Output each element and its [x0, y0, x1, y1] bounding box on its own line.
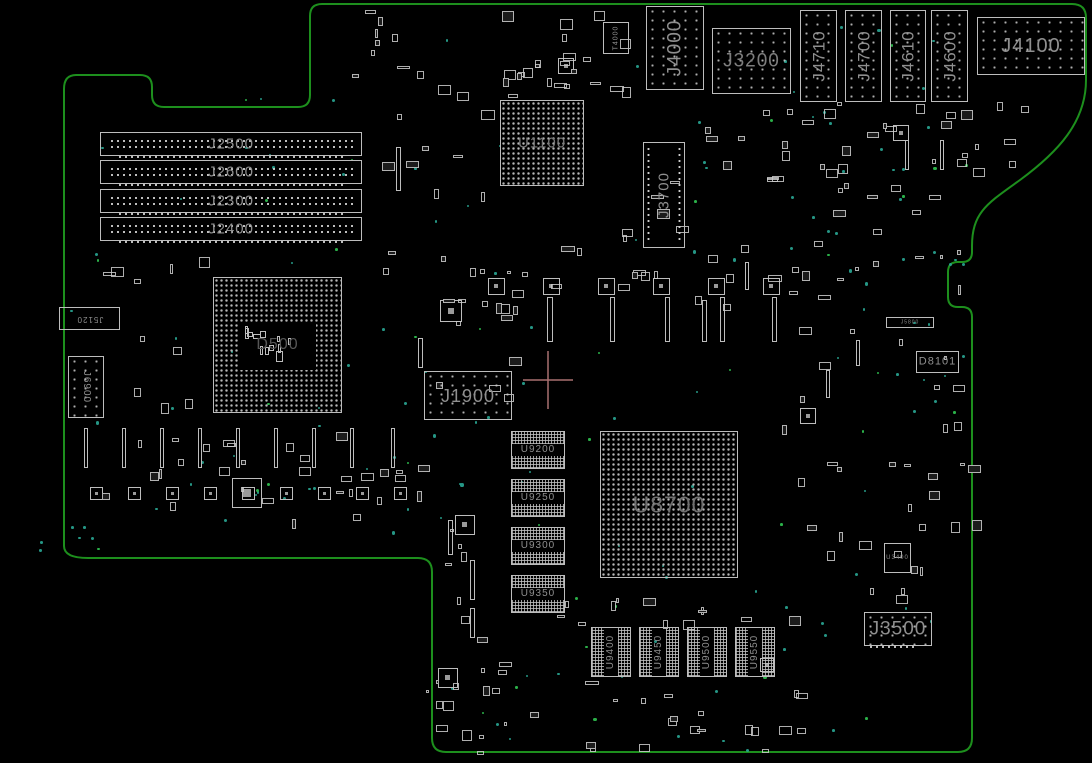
- component-J2400[interactable]: J2400: [100, 217, 362, 241]
- via-dot: [291, 262, 293, 264]
- refdes-label-U9500: U9500: [702, 635, 712, 669]
- smd-part: [443, 299, 455, 303]
- smd-part: [336, 432, 347, 441]
- smd-part: [561, 246, 574, 252]
- via-dot: [585, 646, 587, 648]
- smd-part: [382, 162, 395, 172]
- smd-part: [698, 610, 707, 613]
- pin-column: [646, 146, 651, 244]
- via-dot: [613, 417, 616, 420]
- via-dot: [635, 239, 637, 241]
- component-U9550[interactable]: U9550: [735, 627, 775, 677]
- component-U9350[interactable]: U9350: [511, 575, 565, 613]
- smd-part: [916, 104, 925, 114]
- smd-part: [436, 680, 439, 684]
- via-dot: [446, 39, 449, 42]
- smd-pad: [659, 284, 663, 288]
- component-J3500[interactable]: J3500: [864, 612, 932, 646]
- component-J4710[interactable]: J4710: [800, 10, 837, 102]
- smd-part: [517, 73, 521, 80]
- smd-part: [161, 403, 169, 413]
- smd-pad: [95, 492, 98, 495]
- via-dot: [715, 690, 718, 693]
- via-dot: [705, 167, 708, 170]
- smd-part: [160, 428, 164, 468]
- via-dot: [905, 607, 907, 609]
- smd-part: [392, 34, 398, 42]
- component-J4100[interactable]: J4100: [977, 17, 1085, 75]
- component-D8101[interactable]: D8101: [916, 351, 959, 373]
- via-dot: [95, 253, 98, 256]
- via-dot: [190, 483, 193, 486]
- smd-part: [844, 183, 849, 189]
- smd-part: [241, 487, 244, 492]
- smd-pad: [171, 492, 174, 495]
- smd-part: [422, 146, 429, 151]
- smd-part: [867, 132, 879, 138]
- component-U9400[interactable]: U9400: [591, 627, 631, 677]
- via-dot: [865, 282, 868, 285]
- smd-part: [957, 159, 966, 167]
- component-U1100[interactable]: U1100: [500, 100, 584, 186]
- via-dot: [335, 248, 338, 251]
- smd-part: [262, 498, 274, 504]
- via-dot: [840, 26, 843, 29]
- smd-part: [470, 560, 475, 600]
- refdes-label-U9200: U9200: [521, 445, 555, 455]
- pin-grid: [762, 628, 774, 676]
- component-T4000[interactable]: T4000: [603, 22, 629, 54]
- smd-part: [698, 711, 704, 716]
- via-dot: [827, 230, 830, 233]
- smd-part: [365, 10, 376, 14]
- smd-pad: [899, 131, 903, 135]
- component-J2600[interactable]: J2600: [100, 160, 362, 184]
- smd-part: [799, 327, 812, 336]
- via-dot: [832, 729, 835, 732]
- component-J6900[interactable]: J6900: [68, 356, 104, 418]
- smd-part: [391, 428, 395, 468]
- smd-part: [440, 300, 462, 322]
- component-U8700[interactable]: U8700: [600, 431, 738, 578]
- smd-part: [499, 662, 512, 667]
- refdes-label-U9400: U9400: [606, 635, 616, 669]
- smd-part: [972, 520, 982, 531]
- via-dot: [224, 519, 227, 522]
- smd-part: [501, 315, 513, 321]
- smd-part: [356, 487, 369, 500]
- smd-part: [417, 491, 423, 501]
- smd-part: [929, 195, 941, 201]
- smd-part: [445, 563, 452, 566]
- smd-part: [954, 422, 962, 431]
- smd-part: [951, 522, 961, 532]
- smd-part: [1021, 106, 1029, 113]
- smd-part: [670, 716, 678, 722]
- smd-part: [557, 615, 564, 619]
- refdes-label-U8700: U8700: [633, 493, 706, 516]
- smd-part: [1009, 161, 1016, 168]
- smd-part: [610, 297, 615, 342]
- smd-part: [159, 469, 162, 479]
- via-dot: [913, 410, 916, 413]
- refdes-label-J1900: J1900: [441, 387, 495, 405]
- component-J3700[interactable]: J3700: [643, 142, 685, 248]
- via-dot: [892, 169, 894, 171]
- smd-part: [796, 693, 808, 699]
- smd-part: [802, 120, 814, 125]
- smd-part: [436, 725, 448, 732]
- component-U9250[interactable]: U9250: [511, 479, 565, 517]
- via-dot: [824, 634, 827, 637]
- via-dot: [934, 400, 937, 403]
- via-dot: [588, 438, 590, 440]
- smd-part: [375, 29, 379, 38]
- via-dot: [39, 549, 42, 552]
- smd-part: [481, 668, 485, 673]
- component-D500[interactable]: D500: [213, 277, 342, 413]
- smd-part: [394, 487, 407, 500]
- smd-part: [798, 478, 805, 486]
- smd-part: [578, 622, 585, 626]
- smd-part: [350, 428, 354, 468]
- smd-part: [745, 262, 749, 290]
- via-dot: [557, 673, 559, 675]
- smd-part: [453, 155, 463, 158]
- pin-grid: [736, 628, 748, 676]
- smd-part: [960, 463, 965, 466]
- smd-part: [383, 268, 389, 275]
- smd-part: [641, 698, 647, 703]
- smd-part: [613, 699, 618, 702]
- component-U3400[interactable]: U3400: [884, 543, 911, 573]
- via-dot: [522, 382, 525, 385]
- smd-part: [873, 261, 878, 266]
- via-dot: [812, 116, 814, 118]
- pin-row: [868, 645, 917, 649]
- smd-part: [741, 617, 752, 622]
- smd-part: [767, 178, 777, 183]
- smd-part: [312, 428, 316, 468]
- smd-part: [441, 256, 447, 262]
- refdes-label-J4710: J4710: [810, 30, 827, 81]
- smd-part: [418, 465, 430, 471]
- smd-part: [738, 136, 745, 141]
- smd-part: [388, 251, 396, 254]
- via-dot: [392, 531, 395, 534]
- smd-part: [639, 744, 650, 751]
- via-dot: [837, 357, 840, 360]
- smd-part: [889, 462, 896, 468]
- via-dot: [175, 337, 178, 340]
- refdes-label-J3200: J3200: [723, 52, 780, 71]
- smd-part: [513, 306, 518, 315]
- smd-part: [641, 272, 649, 281]
- smd-part: [929, 491, 940, 500]
- smd-part: [503, 78, 509, 87]
- pin-grid: [688, 628, 700, 676]
- via-dot: [414, 336, 417, 339]
- smd-part: [837, 278, 844, 282]
- via-dot: [97, 548, 100, 551]
- smd-part: [102, 493, 111, 500]
- smd-part: [912, 210, 921, 215]
- smd-part: [940, 255, 943, 259]
- smd-part: [504, 722, 508, 726]
- smd-part: [837, 467, 842, 472]
- smd-part: [353, 514, 361, 520]
- refdes-label-J4100: J4100: [1001, 36, 1061, 56]
- component-J4700[interactable]: J4700: [845, 10, 882, 102]
- smd-part: [502, 11, 514, 22]
- component-J5800[interactable]: J5800: [886, 317, 934, 328]
- smd-part: [1004, 139, 1016, 145]
- via-dot: [96, 421, 99, 424]
- smd-part: [962, 153, 968, 158]
- pin-grid: [714, 628, 726, 676]
- smd-part: [560, 61, 570, 66]
- smd-part: [859, 541, 872, 551]
- via-dot: [366, 468, 368, 470]
- via-dot: [245, 99, 247, 101]
- via-dot: [467, 205, 469, 207]
- smd-part: [565, 601, 569, 607]
- smd-part: [199, 257, 210, 268]
- smd-part: [397, 114, 402, 120]
- smd-part: [140, 336, 145, 342]
- smd-part: [507, 271, 510, 274]
- refdes-label-U9350: U9350: [521, 589, 555, 599]
- smd-part: [973, 168, 985, 177]
- via-dot: [896, 373, 899, 376]
- smd-part: [768, 275, 782, 282]
- smd-part: [708, 255, 718, 263]
- smd-pad: [399, 492, 402, 495]
- pin-grid: [512, 432, 564, 444]
- via-dot: [171, 407, 174, 410]
- component-J3200[interactable]: J3200: [712, 28, 791, 94]
- via-dot: [318, 425, 320, 427]
- smd-part: [352, 74, 359, 78]
- smd-part: [779, 726, 792, 735]
- smd-pad: [209, 492, 212, 495]
- smd-part: [723, 304, 731, 311]
- via-dot: [923, 379, 925, 381]
- smd-part: [940, 140, 944, 170]
- via-dot: [770, 119, 773, 122]
- refdes-label-U9300: U9300: [521, 541, 555, 551]
- boardview-canvas[interactable]: J2500J2600J2300J2400U1100T4000J4000J3200…: [0, 0, 1092, 763]
- pin-grid: [592, 628, 604, 676]
- smd-part: [479, 735, 484, 739]
- smd-part: [377, 497, 382, 504]
- component-J4610[interactable]: J4610: [890, 10, 926, 102]
- smd-part: [705, 127, 711, 135]
- refdes-label-J6900: J6900: [81, 371, 91, 403]
- refdes-label-U9550: U9550: [750, 635, 760, 669]
- via-dot: [694, 200, 697, 203]
- component-J1900[interactable]: J1900: [424, 371, 512, 420]
- via-dot: [509, 738, 511, 740]
- smd-part: [807, 525, 818, 530]
- smd-part: [396, 147, 401, 191]
- smd-part: [741, 245, 749, 253]
- smd-part: [827, 551, 835, 561]
- smd-part: [762, 749, 769, 753]
- smd-part: [477, 637, 488, 643]
- smd-part: [530, 712, 539, 718]
- component-J5120[interactable]: J5120: [59, 307, 120, 330]
- smd-part: [883, 123, 887, 129]
- via-dot: [880, 148, 883, 151]
- pin-grid: [512, 552, 564, 564]
- smd-part: [928, 473, 938, 481]
- smd-part: [594, 11, 605, 21]
- smd-part: [496, 303, 502, 314]
- via-dot: [347, 364, 350, 367]
- smd-part: [975, 144, 979, 150]
- smd-pad: [133, 492, 136, 495]
- smd-part: [456, 321, 461, 326]
- smd-part: [957, 250, 961, 255]
- smd-part: [299, 467, 311, 476]
- smd-part: [457, 597, 461, 605]
- component-U9500[interactable]: U9500: [687, 627, 727, 677]
- smd-part: [632, 272, 638, 279]
- via-dot: [97, 259, 99, 261]
- smd-part: [616, 598, 619, 603]
- refdes-label-D500: D500: [256, 337, 298, 353]
- refdes-label-J5120: J5120: [76, 315, 103, 323]
- smd-part: [664, 694, 672, 698]
- smd-part: [173, 347, 182, 355]
- component-U9450[interactable]: U9450: [639, 627, 679, 677]
- smd-part: [782, 151, 791, 162]
- via-dot: [902, 258, 904, 260]
- smd-part: [236, 428, 240, 468]
- smd-part: [919, 524, 926, 530]
- via-dot: [233, 455, 236, 458]
- via-dot: [962, 263, 965, 266]
- smd-part: [453, 683, 459, 690]
- smd-part: [789, 616, 801, 627]
- smd-part: [178, 459, 184, 466]
- smd-part: [560, 19, 573, 30]
- refdes-label-U1100: U1100: [518, 136, 566, 151]
- smd-part: [873, 229, 882, 236]
- refdes-label-J4600: J4600: [941, 30, 958, 81]
- component-J2500[interactable]: J2500: [100, 132, 362, 156]
- smd-part: [870, 588, 873, 594]
- smd-part: [839, 532, 842, 542]
- smd-part: [697, 729, 706, 732]
- smd-part: [134, 279, 141, 284]
- smd-part: [802, 271, 810, 281]
- smd-part: [961, 110, 974, 120]
- smd-part: [438, 85, 451, 94]
- smd-part: [458, 299, 466, 302]
- via-dot: [793, 91, 795, 93]
- smd-part: [787, 109, 792, 115]
- via-dot: [696, 391, 698, 393]
- via-dot: [155, 508, 157, 510]
- smd-part: [551, 284, 562, 288]
- component-U9200[interactable]: U9200: [511, 431, 565, 469]
- smd-part: [723, 161, 733, 170]
- smd-part: [618, 284, 630, 291]
- smd-part: [198, 428, 202, 468]
- smd-part: [838, 164, 848, 174]
- component-J4600[interactable]: J4600: [931, 10, 968, 102]
- smd-part: [824, 109, 836, 119]
- smd-pad: [806, 414, 810, 418]
- via-dot: [790, 247, 793, 250]
- smd-part: [395, 475, 406, 483]
- smd-part: [820, 164, 825, 171]
- smd-pad: [448, 308, 454, 314]
- pin-grid: [666, 628, 678, 676]
- smd-part: [842, 146, 851, 156]
- via-dot: [863, 308, 865, 310]
- smd-part: [481, 192, 485, 202]
- component-J4000[interactable]: J4000: [646, 6, 704, 90]
- component-J2300[interactable]: J2300: [100, 189, 362, 213]
- pin-row: [117, 212, 346, 216]
- via-dot: [515, 686, 517, 688]
- via-dot: [755, 590, 758, 593]
- via-dot: [482, 712, 484, 714]
- refdes-label-J2400: J2400: [208, 222, 254, 237]
- smd-part: [512, 290, 524, 298]
- via-dot: [827, 254, 829, 256]
- smd-part: [280, 487, 293, 500]
- smd-part: [448, 520, 453, 555]
- smd-part: [610, 86, 624, 93]
- smd-part: [455, 515, 475, 535]
- smd-part: [361, 473, 373, 481]
- smd-part: [378, 17, 383, 26]
- smd-part: [508, 94, 518, 98]
- smd-part: [800, 396, 805, 403]
- refdes-label-J4000: J4000: [666, 20, 685, 77]
- via-dot: [83, 526, 86, 529]
- smd-part: [904, 464, 911, 467]
- smd-part: [934, 385, 940, 390]
- smd-part: [800, 408, 816, 424]
- smd-part: [586, 742, 595, 749]
- pin-row: [117, 183, 346, 187]
- via-dot: [783, 648, 786, 651]
- smd-part: [702, 300, 707, 342]
- pin-grid: [512, 480, 564, 492]
- via-dot: [382, 328, 385, 331]
- smd-pad: [243, 489, 251, 497]
- component-U9300[interactable]: U9300: [511, 527, 565, 565]
- refdes-label-J4610: J4610: [900, 30, 917, 81]
- smd-part: [905, 140, 909, 170]
- smd-part: [833, 210, 847, 217]
- smd-part: [708, 278, 725, 295]
- via-dot: [849, 269, 852, 272]
- via-dot: [440, 517, 442, 519]
- via-dot: [877, 372, 879, 374]
- smd-part: [450, 529, 454, 532]
- smd-part: [792, 267, 799, 273]
- smd-part: [470, 608, 475, 638]
- smd-part: [336, 491, 344, 494]
- smd-part: [480, 269, 485, 273]
- smd-part: [128, 487, 141, 500]
